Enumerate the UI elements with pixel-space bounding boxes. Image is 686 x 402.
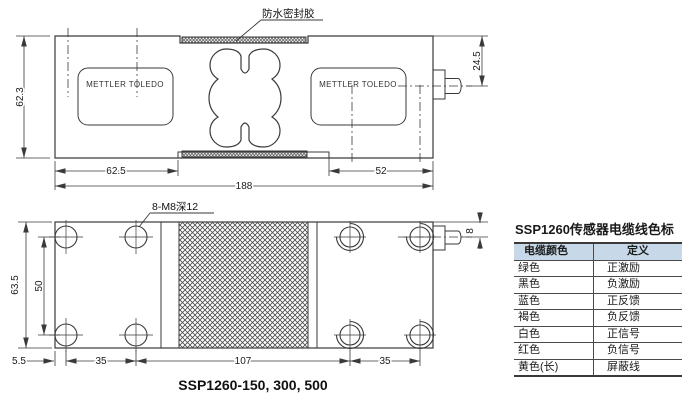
cable-color-cell: 褐色 [514,310,594,326]
hole-crosshairs-right [334,221,436,351]
dim-left-length: 62.5 [106,166,126,177]
dim-height-bottom-view: 63.5 [10,275,21,295]
dim-right-length: 52 [375,166,387,177]
cable-color-cell: 黄色(长) [514,360,594,376]
cable-definition-cell: 负信号 [594,343,682,359]
threaded-holes-right [337,224,434,349]
cable-color-row: 褐色 负反馈 [514,310,682,327]
dim-left-pitch: 35 [95,356,107,367]
dim-total-length: 188 [236,181,253,192]
holes-label: 8-M8深12 [152,201,198,213]
technical-drawing: 防水密封胶 METTLER TOLEDO METTLER TOLEDO 62.3… [0,0,510,402]
brand-plate-right [311,68,406,125]
cable-color-cell: 黑色 [514,277,594,293]
cable-definition-cell: 负激励 [594,277,682,293]
cable-color-row: 黑色 负激励 [514,277,682,294]
cable-table-header-color: 电缆颜色 [514,244,594,260]
bottom-view-drawing [18,212,488,366]
cable-color-row: 红色 负信号 [514,343,682,360]
cable-color-table: SSP1260传感器电缆线色标 电缆颜色 定义 绿色 正激励 黑色 负激励 蓝色… [514,219,682,377]
dim-hole-span: 50 [34,280,45,292]
brand-text-left: METTLER TOLEDO [86,80,164,89]
dim-right-pitch: 35 [379,356,391,367]
cable-definition-cell: 正反馈 [594,294,682,310]
top-view-drawing [16,20,488,190]
cable-color-cell: 蓝色 [514,294,594,310]
cable-table-header-row: 电缆颜色 定义 [514,244,682,261]
load-cell-body-outline [55,36,433,158]
model-caption: SSP1260-150, 300, 500 [178,377,328,393]
cable-definition-cell: 屏蔽线 [594,360,682,376]
hole-crosshairs-left [49,220,153,352]
rubber-boot-hatch [179,222,308,348]
cable-definition-cell: 负反馈 [594,310,682,326]
dim-height-top-view: 62.3 [15,87,26,107]
cable-color-row: 白色 正信号 [514,327,682,344]
brand-plate-left [78,68,173,125]
cable-color-cell: 白色 [514,327,594,343]
cable-gland-bottom [433,226,461,250]
brand-text-right: METTLER TOLEDO [319,80,397,89]
seal-label: 防水密封胶 [262,7,315,20]
dim-cable-offset-bottom-view: 8 [465,228,476,234]
mounting-holes-left [55,226,147,346]
cable-color-cell: 绿色 [514,261,594,277]
dim-center-length: 107 [235,356,252,367]
binocular-cutout [209,49,281,147]
dim-edge-offset: 5.5 [12,356,26,367]
cable-color-row: 绿色 正激励 [514,261,682,278]
cable-table-title: SSP1260传感器电缆线色标 [515,219,682,238]
dim-cable-offset-top-view: 24.5 [472,51,483,71]
load-cell-spec-sheet: 防水密封胶 METTLER TOLEDO METTLER TOLEDO 62.3… [0,0,686,402]
dimensions-top-view [16,36,488,190]
cable-color-row: 黄色(长) 屏蔽线 [514,360,682,376]
cable-table-header-definition: 定义 [594,244,682,260]
cable-color-row: 蓝色 正反馈 [514,294,682,311]
seal-strip-top [182,37,306,43]
cable-definition-cell: 正激励 [594,261,682,277]
cable-table-grid: 电缆颜色 定义 绿色 正激励 黑色 负激励 蓝色 正反馈 褐色 负反馈 白色 正… [514,242,682,377]
cable-color-cell: 红色 [514,343,594,359]
cable-definition-cell: 正信号 [594,327,682,343]
centerlines-top-view [68,28,472,163]
cable-gland-side [433,70,461,99]
